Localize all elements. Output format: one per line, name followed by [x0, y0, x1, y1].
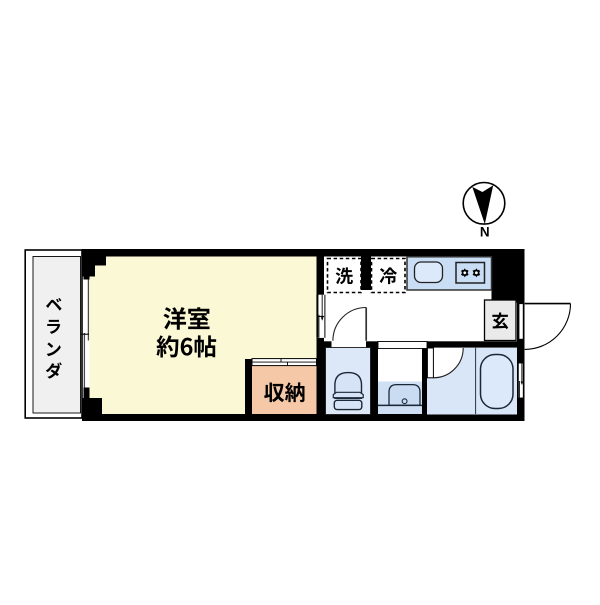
svg-text:N: N	[480, 225, 490, 240]
